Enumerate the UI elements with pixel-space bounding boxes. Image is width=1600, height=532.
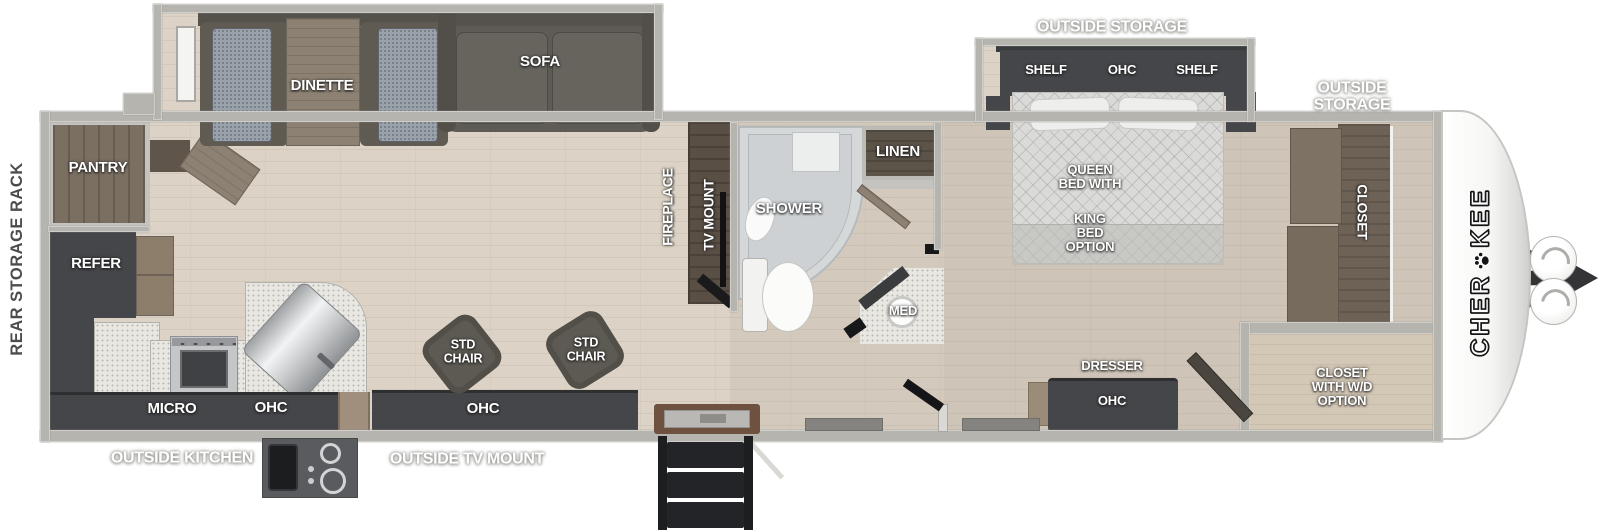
range-grate bbox=[180, 350, 228, 388]
entry-steps-rail-left bbox=[658, 436, 667, 530]
bath-wall-left bbox=[730, 122, 738, 312]
outside-knob-1 bbox=[308, 466, 314, 472]
label-kitchen-ohc: OHC bbox=[255, 400, 288, 416]
toilet-bowl bbox=[762, 262, 814, 332]
slideout-endcap bbox=[123, 93, 155, 115]
bedroom-slideout-wall-top bbox=[975, 38, 1255, 46]
paw-icon bbox=[1471, 251, 1491, 271]
closet-rod bbox=[1390, 126, 1393, 328]
label-closet-wd: CLOSET WITH W/D OPTION bbox=[1312, 366, 1373, 408]
refrigerator-door-split bbox=[136, 274, 174, 276]
entry-latch bbox=[700, 414, 726, 423]
wall-top bbox=[40, 111, 1443, 122]
label-living-ohc: OHC bbox=[467, 401, 500, 417]
label-shower: SHOWER bbox=[756, 201, 822, 217]
label-bed-option: KING BED OPTION bbox=[1066, 212, 1115, 254]
label-outside-storage-front: OUTSIDE STORAGE bbox=[1314, 80, 1391, 115]
closet-door-upper bbox=[1290, 128, 1342, 224]
label-dresser-ohc: OHC bbox=[1098, 394, 1126, 408]
linen-ledge bbox=[862, 180, 940, 189]
dinette-slideout-wall-right bbox=[654, 4, 663, 120]
label-shelf-left: SHELF bbox=[1025, 63, 1067, 77]
label-bed-primary: QUEEN BED WITH bbox=[1059, 163, 1122, 191]
wd-room-wall-top bbox=[1240, 322, 1437, 334]
outside-burner-large bbox=[320, 468, 346, 494]
dinette-cushion-left bbox=[212, 28, 272, 142]
dinette-cushion-right bbox=[378, 28, 438, 142]
range-knob-strip bbox=[172, 338, 236, 346]
label-micro: MICRO bbox=[148, 401, 197, 417]
bedroom-slideout-wall-left bbox=[975, 38, 983, 122]
dinette-window bbox=[176, 26, 196, 102]
label-med: MED bbox=[889, 304, 917, 318]
outside-knob-2 bbox=[308, 478, 314, 484]
label-outside-tv-mount: OUTSIDE TV MOUNT bbox=[390, 450, 544, 467]
kitchen-wood-pillar bbox=[338, 392, 370, 432]
label-refer: REFER bbox=[71, 256, 121, 272]
cherokee-logo-text-end: KEE bbox=[1467, 187, 1496, 247]
label-shelf-right: SHELF bbox=[1176, 63, 1218, 77]
label-fireplace: FIREPLACE bbox=[660, 168, 675, 246]
label-pantry: PANTRY bbox=[69, 160, 128, 176]
propane-swirl-bottom bbox=[1535, 283, 1576, 324]
shower-caddy bbox=[792, 132, 840, 172]
propane-tank-top bbox=[1530, 236, 1577, 283]
pantry-refer-divider bbox=[48, 226, 150, 232]
propane-tank-bottom bbox=[1530, 278, 1577, 325]
label-std-chair-left: STD CHAIR bbox=[444, 339, 483, 366]
label-linen: LINEN bbox=[876, 144, 920, 160]
outside-kitchen-door bbox=[268, 444, 298, 491]
label-dinette: DINETTE bbox=[291, 78, 354, 94]
entry-steps-rail-right bbox=[744, 436, 753, 530]
label-tv-mount: TV MOUNT bbox=[701, 179, 716, 251]
floorplan-canvas: CHER KEE REAR STORAGE RACK PANTRY REFER … bbox=[0, 0, 1600, 532]
cherokee-logo-text-start: CHER bbox=[1467, 274, 1496, 357]
window-hall bbox=[805, 418, 883, 431]
bath-bedroom-wall bbox=[934, 122, 942, 250]
bedroom-slideout-wall-right bbox=[1247, 38, 1255, 122]
label-sofa: SOFA bbox=[520, 54, 560, 70]
window-bedroom bbox=[962, 418, 1040, 431]
label-outside-kitchen: OUTSIDE KITCHEN bbox=[111, 449, 253, 466]
label-dresser: DRESSER bbox=[1081, 359, 1142, 373]
label-rear-storage-rack: REAR STORAGE RACK bbox=[9, 162, 27, 355]
label-closet: CLOSET bbox=[1354, 184, 1369, 240]
entry-step-3 bbox=[667, 502, 744, 528]
label-outside-storage-bedroom: OUTSIDE STORAGE bbox=[1037, 18, 1187, 35]
refrigerator bbox=[48, 232, 136, 318]
propane-swirl-top bbox=[1535, 241, 1576, 282]
entry-step-2 bbox=[667, 472, 744, 498]
tv-screen bbox=[720, 192, 726, 287]
living-ohc-band bbox=[372, 390, 638, 432]
outside-burner-small bbox=[320, 443, 341, 464]
dinette-slideout-wall-top bbox=[153, 4, 663, 13]
closet-door-lower bbox=[1287, 226, 1339, 324]
bed-foot-band bbox=[1012, 224, 1224, 265]
entry-step-1 bbox=[667, 442, 744, 468]
refrigerator-doors bbox=[136, 236, 174, 316]
label-bedroom-ohc-top: OHC bbox=[1108, 63, 1136, 77]
wall-left-rear bbox=[40, 111, 50, 442]
label-std-chair-right: STD CHAIR bbox=[567, 337, 606, 364]
